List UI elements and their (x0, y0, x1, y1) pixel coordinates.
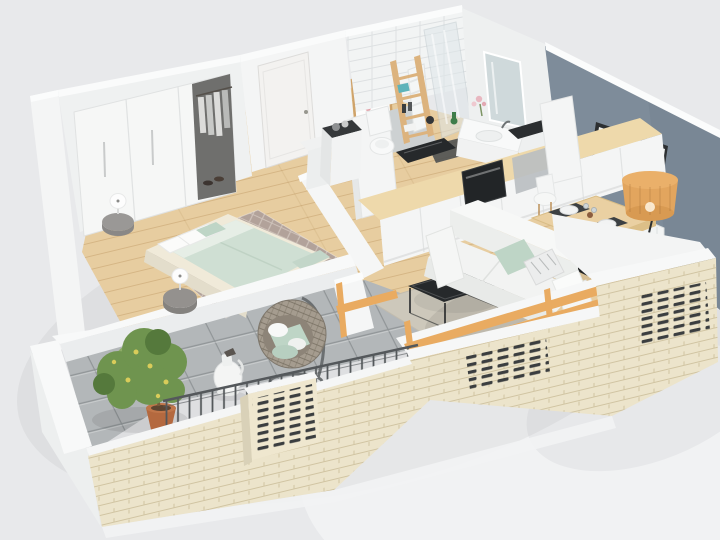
sink-basin (476, 131, 502, 142)
egg-chair-pillow (268, 323, 288, 337)
mirror (484, 52, 526, 128)
shoes (214, 177, 224, 182)
shelf-bottles (402, 104, 406, 113)
entrance-door (258, 52, 316, 168)
door-handle (304, 110, 308, 114)
kettle (426, 116, 434, 124)
shoes (203, 181, 213, 186)
apartment-3d-render (0, 0, 720, 540)
